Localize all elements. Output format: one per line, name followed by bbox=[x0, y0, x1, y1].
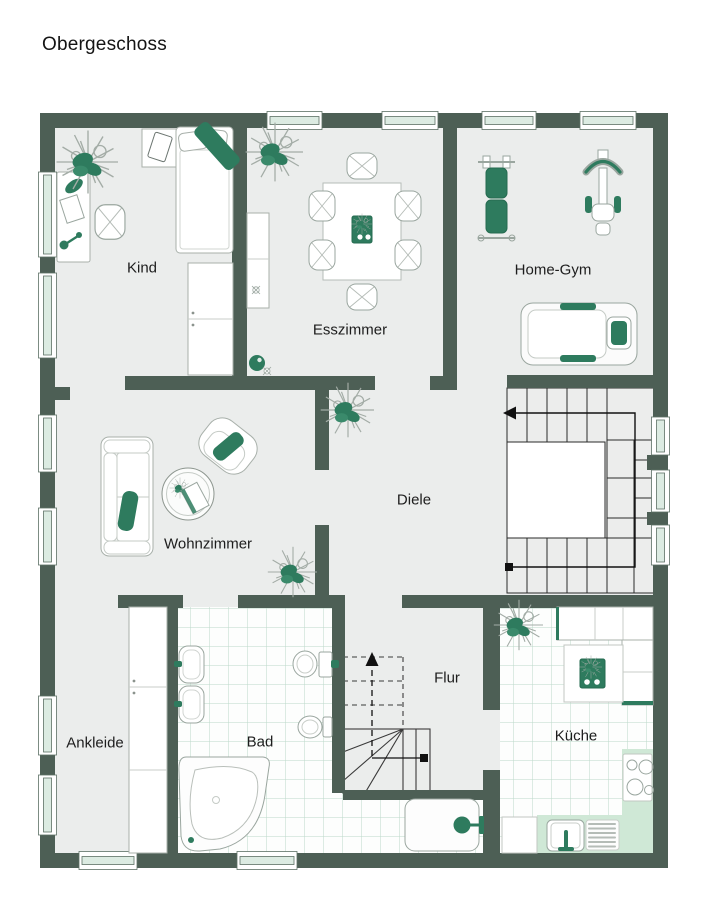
window-icon bbox=[39, 696, 57, 755]
window-icon bbox=[39, 172, 57, 257]
window-icon bbox=[482, 112, 536, 130]
shower bbox=[405, 799, 484, 851]
kitchen-sink bbox=[547, 820, 584, 851]
window-icon bbox=[382, 112, 438, 130]
sink-drainer bbox=[586, 820, 619, 850]
room-label-homegym: Home-Gym bbox=[515, 262, 592, 279]
room-label-kind: Kind bbox=[127, 260, 157, 277]
window-icon bbox=[39, 508, 57, 565]
bidet bbox=[298, 716, 332, 738]
kind-wardrobe bbox=[188, 263, 233, 375]
esszimmer-sideboard bbox=[247, 213, 269, 308]
ankleide-closet bbox=[129, 607, 167, 853]
dining-chair bbox=[347, 284, 377, 310]
window-icon bbox=[652, 417, 670, 455]
floor-plan: Obergeschoss Kind Esszimmer Home-Gym Die… bbox=[0, 0, 710, 900]
room-label-ankleide: Ankleide bbox=[66, 735, 124, 752]
kind-desk bbox=[57, 172, 90, 262]
coffee-table bbox=[162, 468, 214, 520]
kitchen-top-counter bbox=[556, 607, 653, 640]
dining-chair bbox=[395, 191, 421, 221]
kind-bed bbox=[176, 120, 242, 253]
room-label-bad: Bad bbox=[247, 734, 274, 751]
sofa bbox=[101, 437, 153, 556]
treadmill bbox=[521, 303, 637, 365]
window-icon bbox=[79, 852, 137, 870]
page-title: Obergeschoss bbox=[42, 34, 167, 56]
kind-desk-chair bbox=[95, 205, 125, 240]
window-icon bbox=[39, 775, 57, 835]
kind-side-table bbox=[142, 129, 178, 167]
kitchen-right-counter bbox=[622, 640, 653, 705]
room-label-wohnzimmer: Wohnzimmer bbox=[164, 536, 252, 553]
room-label-flur: Flur bbox=[434, 670, 460, 687]
dining-chair bbox=[347, 153, 377, 179]
dining-chair bbox=[309, 191, 335, 221]
window-icon bbox=[652, 470, 670, 512]
window-icon bbox=[237, 852, 297, 870]
window-icon bbox=[652, 525, 670, 565]
dining-chair bbox=[395, 240, 421, 270]
main-staircase bbox=[503, 388, 660, 593]
room-label-kueche: Küche bbox=[555, 728, 598, 745]
window-icon bbox=[39, 273, 57, 358]
floor-plan-drawing bbox=[0, 0, 710, 900]
room-label-diele: Diele bbox=[397, 492, 431, 509]
window-icon bbox=[39, 415, 57, 472]
room-label-esszimmer: Esszimmer bbox=[313, 322, 387, 339]
kitchen-bottom-counter bbox=[502, 815, 653, 853]
window-icon bbox=[580, 112, 636, 130]
dining-chair bbox=[309, 240, 335, 270]
kitchen-island bbox=[564, 645, 623, 702]
